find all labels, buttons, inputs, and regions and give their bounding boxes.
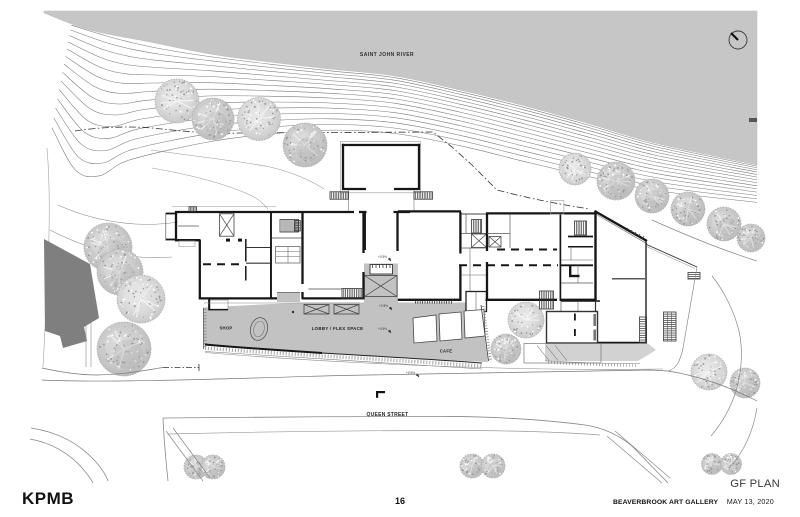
- svg-text:+0 5½: +0 5½: [378, 327, 387, 331]
- svg-text:CAFE: CAFE: [440, 349, 453, 354]
- svg-text:BEAVERBROOK ART GALLERY: BEAVERBROOK ART GALLERY: [613, 499, 719, 506]
- svg-text:GF PLAN: GF PLAN: [730, 478, 780, 490]
- svg-text:QUEEN STREET: QUEEN STREET: [367, 412, 409, 418]
- svg-text:16: 16: [395, 496, 405, 506]
- svg-text:LOBBY / FLEX SPACE: LOBBY / FLEX SPACE: [312, 326, 364, 331]
- svg-text:KPMB: KPMB: [22, 489, 74, 508]
- svg-text:+0 5½: +0 5½: [378, 255, 387, 259]
- svg-text:MAY 13, 2020: MAY 13, 2020: [727, 497, 774, 506]
- svg-text:SAINT JOHN RIVER: SAINT JOHN RIVER: [360, 52, 414, 58]
- svg-text:SHOP: SHOP: [219, 326, 232, 331]
- svg-text:+0 5½: +0 5½: [379, 304, 388, 308]
